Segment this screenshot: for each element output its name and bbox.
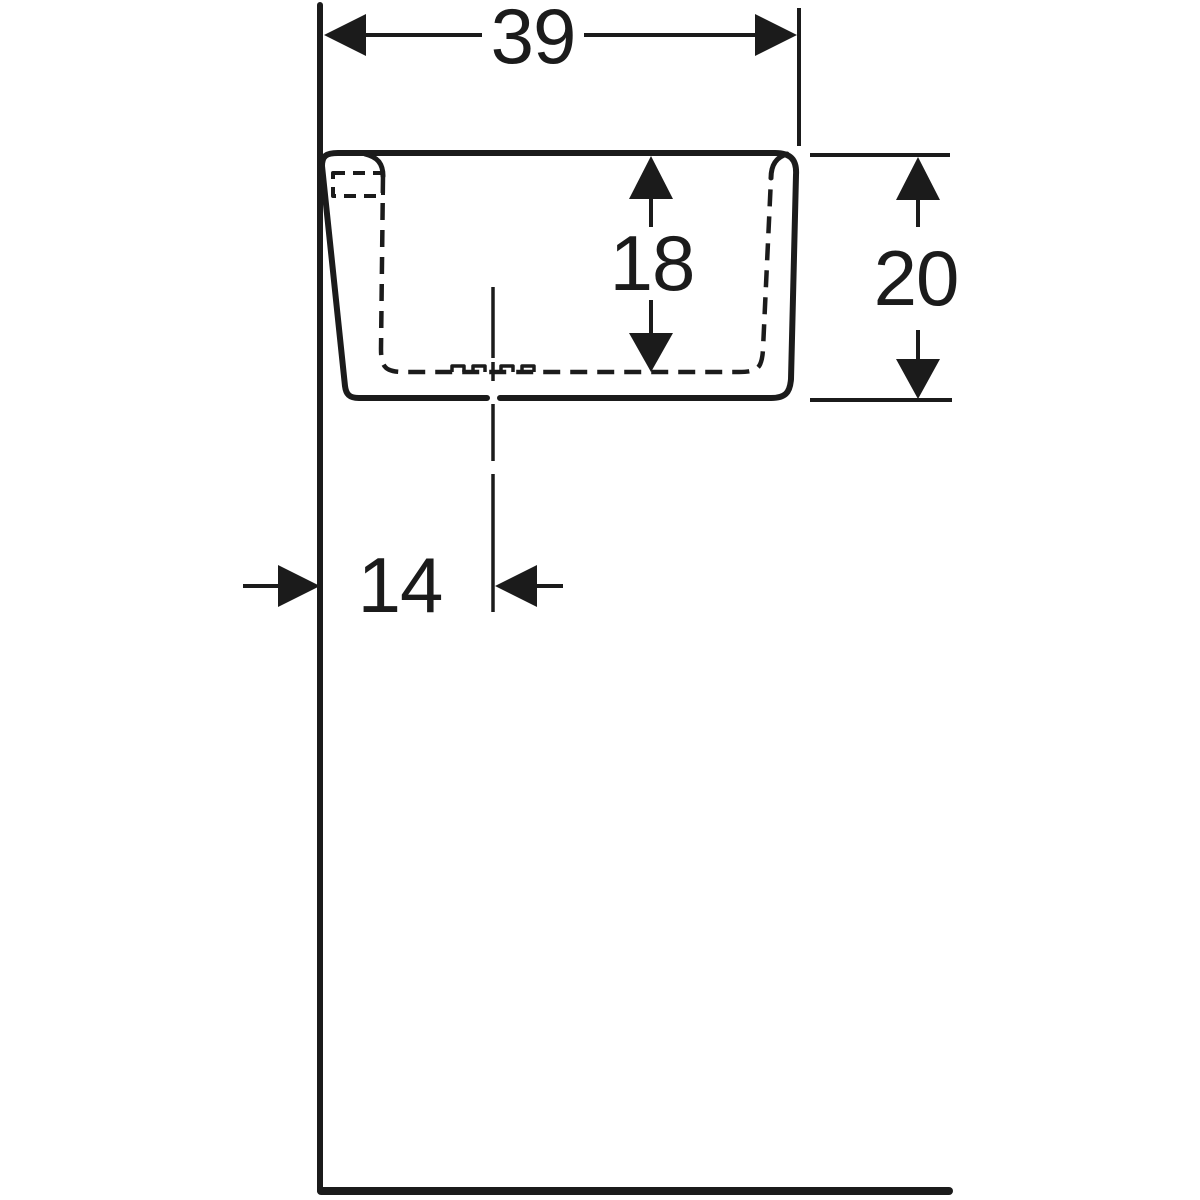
arrowhead-down-icon bbox=[629, 333, 673, 372]
dimension-top-width: 39 bbox=[324, 0, 799, 146]
arrowhead-up-icon bbox=[629, 156, 673, 199]
dimension-overall-height: 20 bbox=[810, 155, 958, 400]
basin-section bbox=[322, 153, 796, 398]
fixing-hole-hidden bbox=[333, 173, 383, 196]
dimension-label-bowl-depth: 18 bbox=[610, 219, 695, 307]
basin-outer-profile-right bbox=[322, 153, 796, 398]
technical-drawing: 39 18 20 14 bbox=[0, 0, 1200, 1200]
arrowhead-up-icon bbox=[896, 157, 940, 200]
dimension-label-top-width: 39 bbox=[491, 0, 576, 80]
basin-outer-profile-left bbox=[322, 166, 487, 398]
dimension-bowl-depth: 18 bbox=[610, 156, 695, 372]
arrowhead-left-icon bbox=[495, 565, 537, 607]
dimension-centerline-offset: 14 bbox=[243, 541, 563, 629]
arrowhead-right-icon bbox=[755, 14, 797, 56]
arrowhead-left-icon bbox=[324, 14, 366, 56]
arrowhead-down-icon bbox=[896, 359, 940, 399]
rim-inner-edge-right-icon bbox=[771, 154, 787, 178]
arrowhead-right-icon bbox=[278, 565, 320, 607]
basin-inner-contour-hidden bbox=[381, 176, 771, 372]
dimension-label-centerline-offset: 14 bbox=[358, 541, 443, 629]
dimension-label-overall-height: 20 bbox=[874, 234, 959, 322]
